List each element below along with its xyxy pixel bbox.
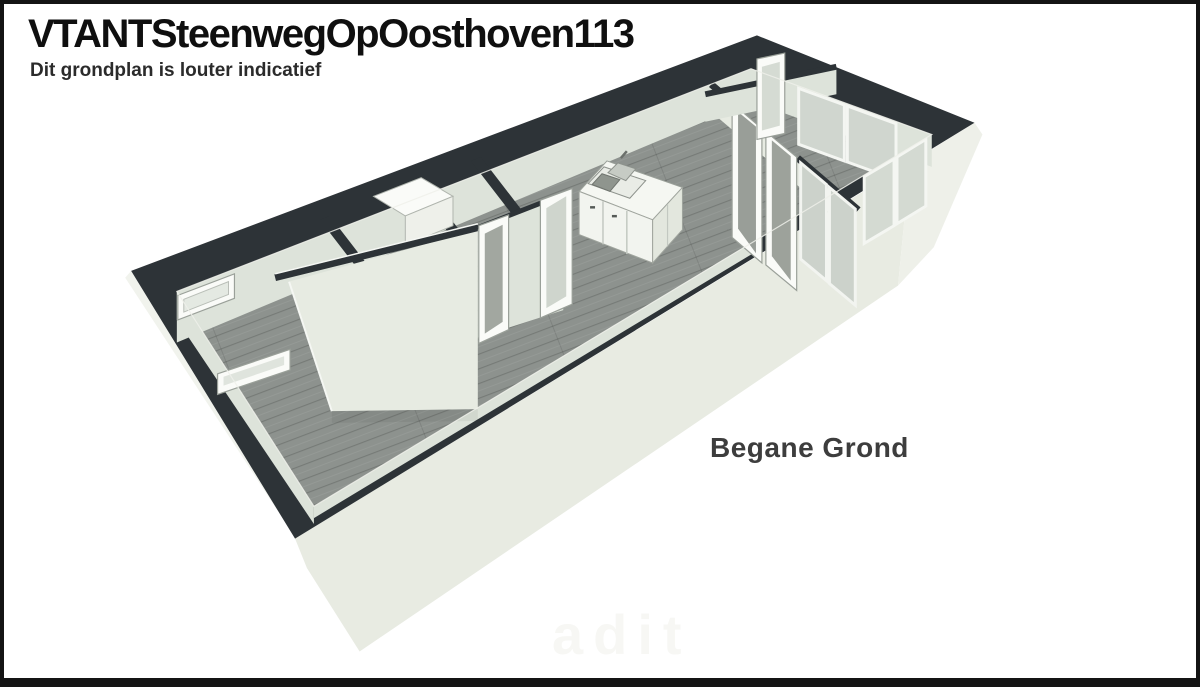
floor-name-label: Begane Grond [710,432,909,464]
kitchen-handle [590,206,595,208]
door-frame-corridor-1 [479,215,509,344]
floorplan-page: VTANTSteenwegOpOosthoven113 Dit grondpla… [0,0,1200,687]
door-frame-topright-room [757,53,785,139]
door-frame-corridor-2 [540,188,572,318]
kitchen-handle [612,215,617,217]
watermark-text: adit [552,602,692,667]
door-frame-divider-2 [766,132,797,291]
floorplan-3d-view [4,4,1196,678]
page-title: VTANTSteenwegOpOosthoven113 [28,12,634,57]
page-subtitle: Dit grondplan is louter indicatief [30,60,321,82]
